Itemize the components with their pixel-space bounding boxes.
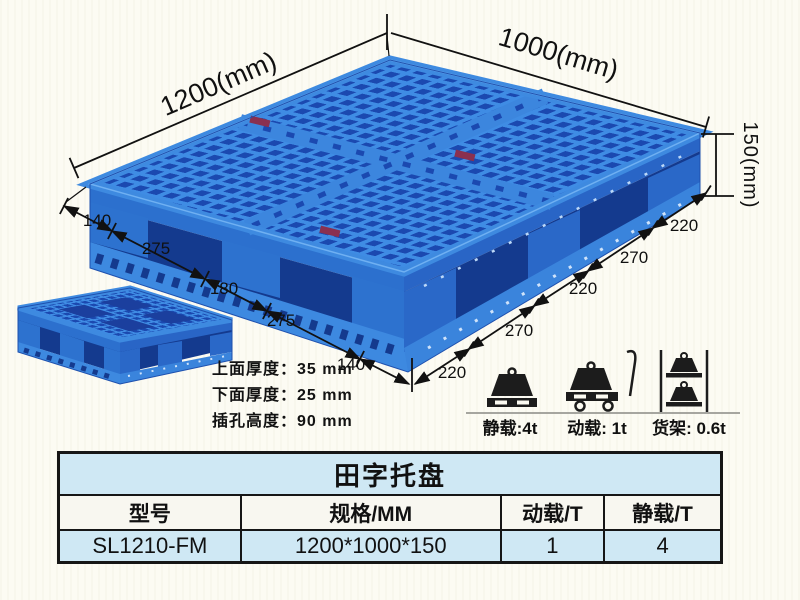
dim-label: 140 — [83, 211, 111, 230]
rack-load-icon — [661, 350, 707, 412]
cell-dynamic-load: 1 — [501, 530, 604, 563]
dynamic-load-icon — [566, 351, 635, 410]
spec-table: 田字托盘 型号 规格/MM 动载/T 静载/T SL1210-FM 1200*1… — [57, 451, 723, 564]
cell-static-load: 4 — [604, 530, 721, 563]
rack-load-label: 货架: 0.6t — [652, 418, 726, 438]
dim-label: 220 — [438, 363, 466, 382]
dim-label: 180 — [210, 279, 238, 298]
top-thickness-note: 上面厚度：35 mm — [212, 357, 353, 383]
dim-label-1000: 1000(mm) — [495, 21, 621, 85]
header-spec: 规格/MM — [241, 495, 501, 530]
dim-label: 220 — [670, 216, 698, 235]
header-dynamic-load: 动载/T — [501, 495, 604, 530]
dim-label-150: 150(mm) — [739, 121, 761, 208]
static-load-icon — [487, 369, 537, 408]
pallet-diagram: 1200(mm) 1000(mm) 150(mm) 140 275 180 27… — [0, 0, 800, 450]
dim-label: 275 — [267, 311, 295, 330]
cell-model: SL1210-FM — [59, 530, 241, 563]
table-title: 田字托盘 — [59, 453, 722, 496]
product-sheet: 1200(mm) 1000(mm) 150(mm) 140 275 180 27… — [0, 0, 800, 600]
dim-label: 275 — [142, 239, 170, 258]
bottom-thickness-note: 下面厚度：25 mm — [212, 383, 353, 409]
dynamic-load-label: 动载: 1t — [567, 418, 627, 438]
table-row: SL1210-FM 1200*1000*150 1 4 — [59, 530, 722, 563]
header-model: 型号 — [59, 495, 241, 530]
header-static-load: 静载/T — [604, 495, 721, 530]
dim-label: 270 — [620, 248, 648, 267]
load-rating-icons: 静载:4t 动载: 1t 货架: 0.6t — [466, 350, 740, 438]
fork-hole-height-note: 插孔高度：90 mm — [212, 409, 353, 435]
dim-label: 220 — [569, 279, 597, 298]
static-load-label: 静载:4t — [483, 418, 538, 438]
cell-spec: 1200*1000*150 — [241, 530, 501, 563]
thickness-notes: 上面厚度：35 mm 下面厚度：25 mm 插孔高度：90 mm — [212, 357, 353, 435]
dim-label: 270 — [505, 321, 533, 340]
small-pallet-foot — [210, 332, 232, 356]
